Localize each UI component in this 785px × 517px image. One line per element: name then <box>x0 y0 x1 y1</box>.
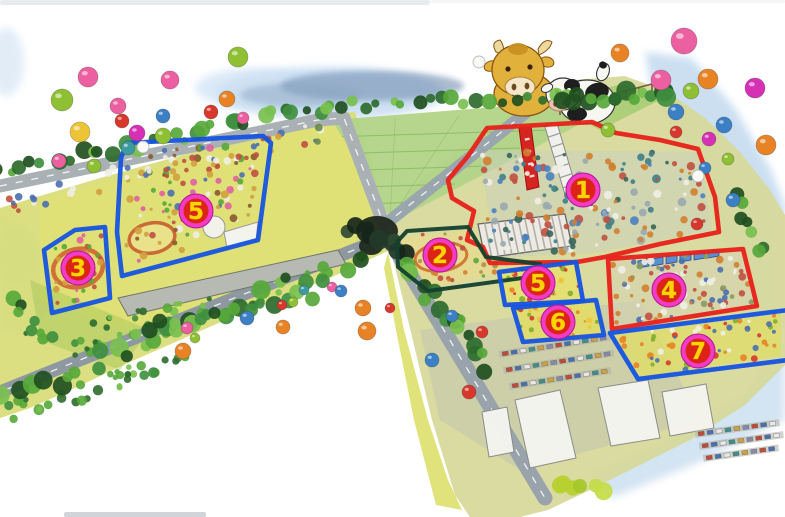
farm-park-guide-map: 12355647 <box>0 0 785 517</box>
balloon-yellow <box>70 122 90 142</box>
zone-marker-5-east[interactable]: 5 <box>521 266 555 300</box>
balloon-green <box>51 89 73 111</box>
zone-marker-3[interactable]: 3 <box>61 251 95 285</box>
balloon-teal <box>299 285 309 295</box>
scan-edge-artifact <box>0 0 430 5</box>
zone-marker-6[interactable]: 6 <box>541 305 575 339</box>
balloon-magenta <box>745 78 765 98</box>
balloon-orange <box>355 300 371 316</box>
balloon-green <box>155 128 171 144</box>
balloon-teal <box>121 141 135 155</box>
balloon-red <box>670 126 682 138</box>
balloon-orange <box>756 135 776 155</box>
scan-edge-artifact <box>64 512 206 517</box>
balloon-magenta <box>129 125 145 141</box>
zone-marker-label: 5 <box>530 271 546 297</box>
balloon-pink <box>52 154 66 168</box>
balloon-red <box>691 218 703 230</box>
balloon-white <box>692 170 704 182</box>
balloon-green <box>601 123 615 137</box>
balloon-red <box>115 114 129 128</box>
balloon-pink <box>651 70 671 90</box>
balloon-blue <box>425 353 439 367</box>
balloon-green <box>87 159 101 173</box>
zone-marker-label: 3 <box>70 256 86 282</box>
zone-marker-7[interactable]: 7 <box>681 334 715 368</box>
balloon-blue <box>668 104 684 120</box>
balloon-orange <box>175 343 191 359</box>
balloon-blue <box>446 310 458 322</box>
balloon-pink <box>237 112 249 124</box>
balloon-red <box>204 105 218 119</box>
balloon-orange <box>358 322 376 340</box>
balloon-blue <box>240 311 254 325</box>
zone-marker-2[interactable]: 2 <box>423 238 457 272</box>
balloon-green <box>228 47 248 67</box>
balloon-green <box>683 83 699 99</box>
balloon-pink <box>671 28 697 54</box>
zone-marker-4[interactable]: 4 <box>652 273 686 307</box>
park-map-illustration: 12355647 <box>0 0 785 517</box>
zone-marker-5-west[interactable]: 5 <box>179 194 213 228</box>
balloon-blue <box>716 117 732 133</box>
balloon-white <box>137 141 149 153</box>
balloon-pink <box>78 67 98 87</box>
balloon-red <box>277 300 287 310</box>
balloon-blue <box>156 109 170 123</box>
zone-marker-label: 4 <box>661 278 677 304</box>
balloon-green <box>190 333 200 343</box>
balloon-red <box>476 326 488 338</box>
entrance-building <box>662 384 714 436</box>
zone-marker-label: 2 <box>432 243 448 269</box>
balloon-green <box>722 153 734 165</box>
balloon-green <box>288 297 298 307</box>
balloon-orange <box>219 91 235 107</box>
balloon-magenta <box>702 132 716 146</box>
balloon-red <box>385 303 395 313</box>
scan-edge-artifact <box>430 0 785 3</box>
balloon-red <box>462 385 476 399</box>
zone-marker-label: 5 <box>188 199 204 225</box>
zone-marker-1[interactable]: 1 <box>566 173 600 207</box>
balloon-pink <box>110 98 126 114</box>
balloon-orange <box>698 69 718 89</box>
balloon-white <box>473 56 485 68</box>
zone-marker-label: 7 <box>690 339 706 365</box>
balloon-blue <box>335 285 347 297</box>
balloon-pink <box>181 322 193 334</box>
balloon-pink <box>161 71 179 89</box>
zone-marker-label: 6 <box>550 310 566 336</box>
zone-marker-label: 1 <box>575 178 591 204</box>
balloon-orange <box>276 320 290 334</box>
balloon-orange <box>611 44 629 62</box>
balloon-blue <box>726 193 740 207</box>
